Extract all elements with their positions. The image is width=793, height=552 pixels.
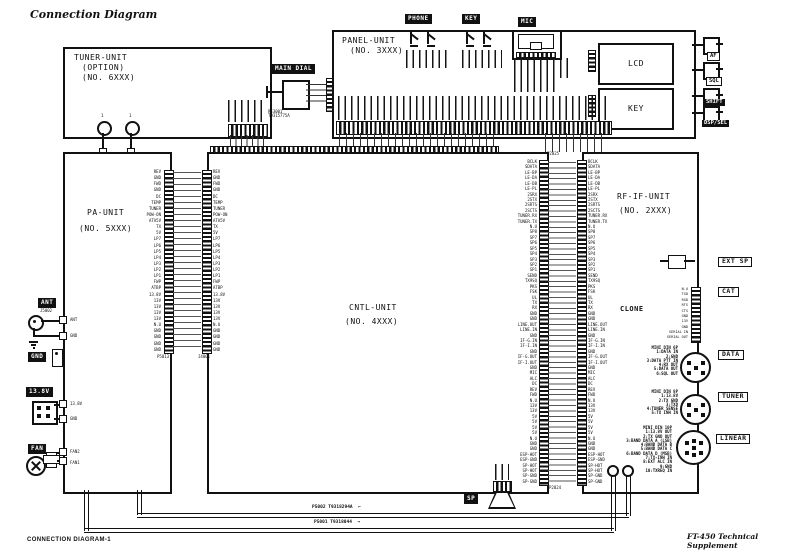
pin-label: BCLK — [494, 160, 537, 164]
pin-label: FWD — [494, 393, 537, 397]
pin-label: GND — [494, 447, 537, 451]
pin-label: TUNER.RX — [494, 214, 537, 218]
cntl-side-connector-strip — [202, 170, 212, 354]
pin-label: ESP-HOT — [494, 453, 537, 457]
pin-label: 2STX — [588, 198, 631, 202]
pin-label: POW-ON — [110, 213, 161, 217]
pin-label: REV — [213, 170, 264, 174]
pin-label: 2SRTS — [588, 203, 631, 207]
pin-label: GND — [213, 335, 264, 339]
cable-p5001 — [84, 490, 89, 531]
pa-edge-pin-label: FAN2 — [70, 450, 80, 454]
pin-label: SP6 — [588, 241, 631, 245]
dsp-sel-control-badge: DSP/SEL — [702, 120, 729, 127]
pin-label: SP8 — [588, 230, 631, 234]
pa-edge-pin-label: GND — [70, 417, 77, 421]
pin-label: SP8 — [494, 230, 537, 234]
pin-label: LINE.IN — [494, 328, 537, 332]
ant-badge: ANT — [38, 298, 56, 308]
pin-label: TEMP — [110, 201, 161, 205]
cable-terminal — [622, 465, 634, 477]
pot-link — [692, 69, 703, 71]
cat-connector-strip — [691, 287, 701, 343]
pin-label: ATA5V — [110, 219, 161, 223]
pin-label: 13V — [494, 409, 537, 413]
pin-label: LE-PL — [588, 187, 631, 191]
pin-label: TUNER.TX — [588, 220, 631, 224]
encoder-ref: RE3001T9315775A — [268, 110, 290, 119]
pa-edge-pin — [59, 415, 67, 423]
mic-jack-wiring — [514, 58, 556, 92]
ext-sp-wire — [684, 260, 695, 262]
pin-label: TUNER — [110, 207, 161, 211]
pin-label: LP2 — [213, 268, 264, 272]
ant-connector-ref: J5002 — [40, 309, 52, 313]
pin-label: SP-GND — [588, 480, 631, 484]
pin-label: GND — [588, 334, 631, 338]
pin-label: ATA5V — [213, 219, 264, 223]
pin-label: LINE.OUT — [588, 323, 631, 327]
main-dial-badge: MAIN DIAL — [272, 64, 315, 74]
pin-label: SP6 — [494, 241, 537, 245]
ant-gnd-wire — [33, 335, 60, 337]
panel-pin-labels — [338, 96, 608, 120]
pin-label: REV — [110, 170, 161, 174]
pin-label: IF-G.OUT — [588, 355, 631, 359]
mic-extra-wiring — [560, 58, 570, 78]
pin-label: 2SRTS — [494, 203, 537, 207]
pa-cntl-pin-labels-left: REVGNDFWDGNDDCTEMPTUNERPOW-ONATA5VTX5VLP… — [110, 170, 161, 352]
footer-sheet-label: CONNECTION DIAGRAM-1 — [27, 537, 111, 543]
pot-link — [692, 112, 703, 114]
pin-label: LP1 — [213, 274, 264, 278]
cntl-rfif-pin-labels-left: BCLKSDATALE-BPLE-DALE-DBLE-PL2SRX2STX2SR… — [494, 160, 537, 484]
cat-badge: CAT — [718, 287, 739, 297]
lcd-block: LCD — [598, 43, 674, 85]
pin-label: LP4 — [213, 256, 264, 260]
cable-p5002 — [626, 472, 631, 516]
pin-label: GND — [494, 442, 537, 446]
pin-label: 2SCTS — [494, 209, 537, 213]
pin-label: GND — [588, 366, 631, 370]
pin-label: RX — [494, 306, 537, 310]
pin-label: TXD — [648, 293, 688, 297]
pin-label: GND — [213, 348, 264, 352]
pin-label: REV — [494, 388, 537, 392]
pa-edge-pin-label: 13.8V — [70, 402, 82, 406]
pin-label: DC — [213, 195, 264, 199]
pa-cntl-pin-labels-right: REVGNDFWDGNDDCTEMPTUNERPOW-ONATA5VTX5VLP… — [213, 170, 264, 352]
arrow-left-icon: ← — [358, 505, 361, 510]
pin-label: 5V — [494, 420, 537, 424]
pin-label: 13V — [213, 317, 264, 321]
pin-label: 13.8V — [213, 293, 264, 297]
key-jack-contact-icon — [483, 31, 493, 47]
lcd-connector-strip — [588, 50, 596, 72]
pin-label: FWP — [110, 280, 161, 284]
pin-label: N.U — [213, 323, 264, 327]
pin-label: UL — [494, 296, 537, 300]
key-jack-wiring — [462, 50, 502, 68]
pin-label: FSK — [494, 290, 537, 294]
clone-label: CLONE — [620, 305, 644, 313]
pin-label: N.U — [648, 288, 688, 292]
phone-jack-contact-icon — [410, 31, 420, 47]
key-jack-badge: KEY — [462, 14, 480, 24]
pin-label: IF-I.OUT — [494, 361, 537, 365]
tuner-coax-connector-icon — [125, 121, 140, 136]
speaker-connector — [493, 481, 512, 492]
pin-label: SP2 — [588, 263, 631, 267]
af-control-badge: AF — [707, 52, 720, 61]
cable-p5001 — [84, 528, 614, 533]
pin-label: FWD — [588, 393, 631, 397]
pin-label: IF-G.IN — [494, 339, 537, 343]
pot-pin — [716, 43, 723, 45]
pin-label: 13V — [213, 299, 264, 303]
data-mini-din-icon — [680, 352, 711, 383]
pin-label: FWP — [213, 280, 264, 284]
pin-label: FSK — [588, 290, 631, 294]
linear-badge: LINEAR — [716, 434, 750, 444]
pin-label: SP5 — [588, 247, 631, 251]
pin-label: 5V — [494, 415, 537, 419]
ground-symbol — [31, 344, 36, 346]
pin-label: IF-G.IN — [588, 339, 631, 343]
cable-terminal — [607, 465, 619, 477]
pin-label: GND — [588, 317, 631, 321]
pin-label: FWD — [213, 182, 264, 186]
pin-label: POW-ON — [213, 213, 264, 217]
pin-label: N.U — [494, 437, 537, 441]
gnd-post-screw — [55, 352, 58, 355]
ground-symbol — [29, 341, 38, 343]
pin-label: N.U — [494, 399, 537, 403]
ext-sp-jack-icon — [668, 255, 686, 269]
pin-label: DC — [588, 382, 631, 386]
pin-label: IF-I.IN — [494, 344, 537, 348]
pin-label: SERIAL IN — [648, 331, 688, 335]
pa-edge-pin — [59, 457, 67, 465]
cntl-rfif-wires — [548, 162, 576, 483]
pin-label: IF-G.OUT — [494, 355, 537, 359]
cntl-unit-label: CNTL-UNIT — [349, 303, 397, 313]
pin-label: 2SRX — [588, 193, 631, 197]
pin-label: N.U — [110, 323, 161, 327]
pin-label: GND — [213, 342, 264, 346]
pinout-line: 6:SQL OUT — [628, 372, 678, 376]
pin-label: GND — [110, 188, 161, 192]
pin-label: 13.8V — [110, 293, 161, 297]
speaker-wire-labels — [495, 464, 509, 480]
pin-label: LE-PL — [494, 187, 537, 191]
pin-label: LP5 — [110, 250, 161, 254]
pin-label: SP1 — [494, 268, 537, 272]
pin-label: SP1 — [588, 268, 631, 272]
pin-label: 13V — [110, 305, 161, 309]
pin-label: SEND — [494, 274, 537, 278]
cat-pin-labels: N.UTXDRXDRTSCTSGND13VGNDSERIAL INSERIAL … — [648, 288, 688, 340]
pin-label: LE-BP — [588, 171, 631, 175]
pin-label: 13V — [588, 404, 631, 408]
panel-to-rfif-wires — [545, 133, 605, 152]
pin-label: 13V — [588, 409, 631, 413]
pin-label: TX — [494, 301, 537, 305]
pin-label: SERIAL OUT — [648, 336, 688, 340]
pin-label: 13V — [213, 311, 264, 315]
cable-p5002 — [137, 513, 629, 518]
pa-edge-pin — [59, 316, 67, 324]
pin-label: GND — [213, 176, 264, 180]
footer-doc-label: FT-450 Technical Supplement — [687, 532, 793, 550]
pin-label: SP3 — [494, 258, 537, 262]
pa-edge-pin — [59, 400, 67, 408]
ground-symbol — [33, 347, 35, 349]
rfif-side-connector-strip — [577, 160, 587, 486]
pin-label: N.U — [494, 225, 537, 229]
ext-sp-badge: EXT SP — [718, 257, 752, 267]
panel-unit-label: PANEL-UNIT(NO. 3XXX) — [342, 36, 403, 56]
encoder-shaft-head — [266, 86, 268, 98]
pin-label: LINE.OUT — [494, 323, 537, 327]
arrow-right-icon: → — [357, 520, 360, 525]
pin-label: SP7 — [494, 236, 537, 240]
pin-label: GND — [494, 317, 537, 321]
cable-p5002 — [137, 490, 142, 515]
pin-label: GND — [494, 334, 537, 338]
pin-label: LE-DB — [588, 182, 631, 186]
pin-label: 5V — [588, 420, 631, 424]
linear-mini-din-icon — [676, 430, 711, 465]
panel-to-cntl-wires — [339, 133, 499, 146]
pin-label: LP4 — [110, 256, 161, 260]
tuner-mini-din-icon — [680, 394, 711, 425]
pin-label: 5V — [110, 231, 161, 235]
pin-label: BCLK — [588, 160, 631, 164]
tuner-to-cntl-wires — [230, 135, 264, 146]
pot-pin — [716, 94, 723, 96]
pin-label: GND — [648, 326, 688, 330]
pin-label: TEMP — [213, 201, 264, 205]
tuner-coax-connector-icon — [97, 121, 112, 136]
pin-label: SP2 — [494, 263, 537, 267]
pin-label: 5V — [588, 415, 631, 419]
cntl-unit-number: (NO. 4XXX) — [345, 317, 398, 327]
ant-coax-icon — [28, 315, 44, 331]
pa-edge-pin-label: FAN1 — [70, 461, 80, 465]
pot-link — [692, 95, 703, 97]
linear-pinout-text: MINI DIN 10P1:13.8V OUT2:TX GND OUT3:BAN… — [612, 426, 672, 473]
data-badge: DATA — [718, 350, 744, 360]
pin-label: DC — [494, 382, 537, 386]
pin-label: ESP-GND — [494, 458, 537, 462]
pin-label: LP1 — [110, 274, 161, 278]
pin-label: LE-BP — [494, 171, 537, 175]
cntl-connector-ref: J4001 — [198, 355, 210, 359]
pin-label: CTS — [648, 310, 688, 314]
pin-label: 2SRX — [494, 193, 537, 197]
pin-label: GND — [494, 366, 537, 370]
pin-label: 13V — [648, 320, 688, 324]
pin-label: LP7 — [213, 237, 264, 241]
pin-label: DC — [110, 195, 161, 199]
key-jack-contact-icon — [466, 31, 476, 47]
ant-wire — [41, 320, 60, 322]
pin-label: SDATA — [588, 165, 631, 169]
pot-link — [692, 44, 703, 46]
pa-edge-pin — [59, 332, 67, 340]
pa-edge-pin-label: ANT — [70, 318, 77, 322]
tuner-unit-label: TUNER-UNIT(OPTION)(NO. 6XXX) — [74, 53, 135, 83]
pin-label: 5V — [213, 231, 264, 235]
pin-label: 2STX — [494, 198, 537, 202]
pin-label: TX — [110, 225, 161, 229]
pin-label: SP7 — [588, 236, 631, 240]
pin-label: 13V — [110, 299, 161, 303]
pin-label: GND — [494, 312, 537, 316]
pin-label: UL — [588, 296, 631, 300]
pin-label: SP4 — [588, 252, 631, 256]
pin-label: LE-DA — [494, 176, 537, 180]
pin-label: GND — [494, 350, 537, 354]
coax-pin-number: 1 — [129, 114, 131, 118]
cable-p5001 — [611, 472, 616, 531]
pin-label: RTS — [648, 304, 688, 308]
pin-label: ATBP — [213, 286, 264, 290]
pin-label: SEND — [588, 274, 631, 278]
tuner-jack-badge: TUNER — [718, 392, 748, 402]
pin-label: GND — [213, 188, 264, 192]
pin-label: FWD — [110, 182, 161, 186]
pin-label: LP7 — [110, 237, 161, 241]
pot-pin — [716, 111, 723, 113]
connection-diagram-page: Connection Diagram CONNECTION DIAGRAM-1 … — [0, 0, 793, 552]
pin-label: TX — [213, 225, 264, 229]
cntl-rfif-ref-top: P2025 — [547, 152, 559, 156]
pin-label: LE-DA — [588, 176, 631, 180]
pa-cntl-wires — [173, 172, 201, 351]
pin-label: GND — [110, 335, 161, 339]
phone-jack-wiring — [406, 50, 450, 68]
cable-p5002-ref: P5002 T9318294A ← — [312, 506, 361, 511]
pin-label: GND — [213, 329, 264, 333]
pin-label: GND — [110, 329, 161, 333]
ant-coax-center — [33, 320, 36, 323]
pinout-line: 10:TXREQ IN — [612, 469, 672, 473]
tuner-connector-pin-labels — [228, 100, 266, 122]
encoder-wires — [306, 84, 326, 106]
pin-label: TUNER — [213, 207, 264, 211]
pinout-line: 5:TX INH IN — [628, 411, 678, 415]
mic-jack-latch-notch — [530, 42, 542, 50]
cntl-rfif-ref-bottom: P2024 — [549, 486, 561, 490]
pin-label: IF-I.IN — [588, 344, 631, 348]
pin-label: 5V — [494, 431, 537, 435]
pin-label: TX9SQ — [494, 279, 537, 283]
pin-label: TUNER.RX — [588, 214, 631, 218]
pin-label: LE-DB — [494, 182, 537, 186]
pin-label: MIC — [588, 371, 631, 375]
cable-p5001-ref: P5001 T9318044 → — [314, 521, 360, 526]
gnd-badge: GND — [28, 352, 46, 362]
pin-label: LINE.IN — [588, 328, 631, 332]
pin-label: LP3 — [110, 262, 161, 266]
pin-label: SP4 — [494, 252, 537, 256]
phone-jack-contact-icon — [427, 31, 437, 47]
pin-label: LP5 — [213, 250, 264, 254]
pin-label: GND — [648, 315, 688, 319]
pin-label: REV — [588, 388, 631, 392]
dc-connector-pins — [37, 406, 41, 410]
pin-label: IF-I.OUT — [588, 361, 631, 365]
pin-label: TUNER.TX — [494, 220, 537, 224]
pin-label: N.U — [588, 225, 631, 229]
pin-label: ATBP — [110, 286, 161, 290]
pin-label: GND — [110, 348, 161, 352]
pin-label: 13V — [110, 311, 161, 315]
pa-connector-ref: P5013 — [157, 355, 169, 359]
phone-jack-badge: PHONE — [405, 14, 432, 24]
tuner-pinout-text: MINI DIN 8P1:13.8V2:TX GND3:TXD4:TUNER S… — [628, 390, 678, 416]
pin-label: PKS — [494, 285, 537, 289]
pot-pin — [716, 68, 723, 70]
pin-label: RXD — [648, 299, 688, 303]
speaker-badge: SP — [464, 494, 478, 504]
pin-label: GND — [110, 342, 161, 346]
pin-label: GND — [110, 176, 161, 180]
pin-label: TX9SQ — [588, 279, 631, 283]
pin-label: ALC — [494, 377, 537, 381]
pin-label: SP5 — [494, 247, 537, 251]
pin-label: LP6 — [110, 244, 161, 248]
pin-label: SDATA — [494, 165, 537, 169]
pin-label: 2SCTS — [588, 209, 631, 213]
mic-jack-badge: MIC — [518, 17, 536, 27]
data-pinout-text: MINI DIN 6P1:DATA IN2:GND3:DATA PTT IN4:… — [628, 346, 678, 376]
coax-pin-number: 1 — [101, 114, 103, 118]
dc-13-8v-badge: 13.8V — [26, 387, 53, 397]
encoder-shaft — [268, 91, 282, 93]
pin-label: 13V — [110, 317, 161, 321]
pin-label: 13V — [494, 404, 537, 408]
pin-label: GND — [588, 350, 631, 354]
pin-label: PKS — [588, 285, 631, 289]
ext-sp-plug-tip — [660, 260, 668, 262]
sql-control-badge: SQL — [706, 77, 722, 86]
pin-label: LP6 — [213, 244, 264, 248]
pin-label: ALC — [588, 377, 631, 381]
pin-label: N.U — [588, 399, 631, 403]
pin-label: LP3 — [213, 262, 264, 266]
page-title: Connection Diagram — [30, 8, 157, 21]
pa-edge-pin-label: GND — [70, 334, 77, 338]
pin-label: 13V — [213, 305, 264, 309]
pa-edge-pin — [59, 448, 67, 456]
pin-label: MIC — [494, 371, 537, 375]
fan-badge: FAN — [28, 444, 46, 454]
pin-label: SP3 — [588, 258, 631, 262]
pin-label: 5V — [494, 426, 537, 430]
pin-label: LP2 — [110, 268, 161, 272]
